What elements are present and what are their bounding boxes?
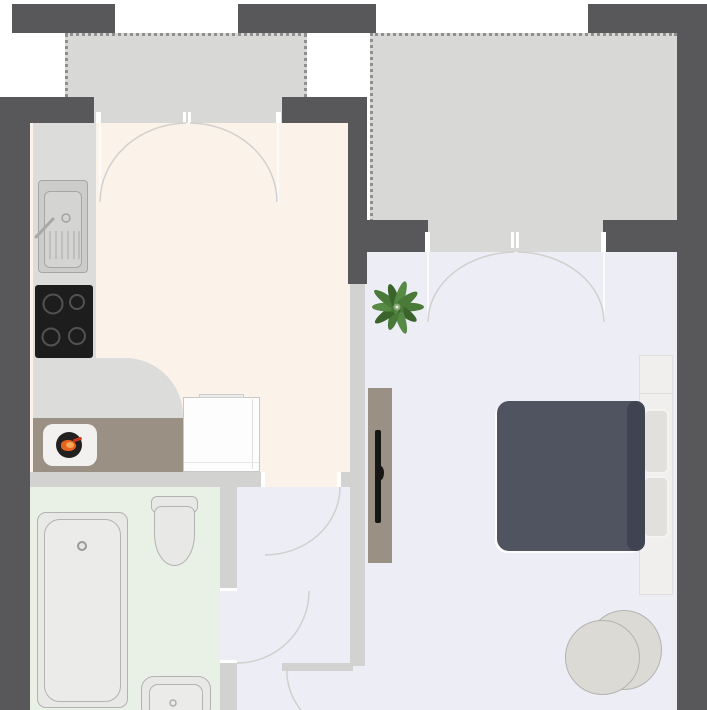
- jamb-balcony-left-door-b: [276, 112, 281, 123]
- jamb-balcony-left-door-mid1: [183, 112, 186, 123]
- armchair-seat: [565, 620, 640, 695]
- bathroom-door-threshold: [220, 591, 237, 663]
- jamb-balcony-right-door-b: [601, 232, 606, 252]
- wall-bathroom-east-upper: [220, 487, 237, 591]
- jamb-bathroom-door-a: [220, 588, 237, 591]
- kitchen-sink-basin: [44, 191, 82, 268]
- fridge-handle: [199, 394, 244, 398]
- cooktop: [35, 285, 93, 358]
- wall-hall-south: [282, 663, 353, 671]
- wall-top-middle: [238, 4, 376, 33]
- wall-kitchen-living-divider: [348, 97, 367, 284]
- door-leaf-balcony-right-a: [427, 252, 429, 322]
- wall-east: [677, 32, 707, 710]
- room-balcony-left: [65, 33, 307, 123]
- washing-machine-laundry-highlight: [66, 442, 74, 448]
- bed-duvet: [497, 401, 645, 551]
- jamb-kitchen-hall-door-a: [261, 472, 265, 487]
- bathroom-sink-basin: [149, 684, 203, 710]
- jamb-bathroom-door-b: [220, 660, 237, 663]
- wall-west: [0, 97, 30, 710]
- door-leaf-balcony-left-a: [99, 123, 101, 203]
- jamb-balcony-right-door-mid2: [516, 232, 519, 248]
- fridge-bottom-line: [184, 462, 259, 463]
- floor-plan: [0, 0, 707, 710]
- tv-mount: [377, 466, 384, 480]
- wall-kitchen-bath-divider: [30, 472, 265, 487]
- jamb-balcony-right-door-a: [425, 232, 430, 252]
- wall-top-left: [12, 4, 115, 33]
- bathtub-drain: [77, 541, 87, 551]
- bed-pillow-1: [643, 409, 669, 474]
- bed-frame-divider: [640, 393, 672, 394]
- bed-duvet-folded-edge: [627, 401, 645, 551]
- jamb-balcony-left-door-a: [96, 112, 101, 123]
- door-leaf-balcony-left-b: [277, 123, 279, 203]
- kitchen-door-threshold: [265, 472, 340, 487]
- jamb-balcony-right-door-mid1: [511, 232, 514, 248]
- wall-top-right: [588, 4, 707, 33]
- door-leaf-balcony-right-b: [603, 252, 605, 322]
- wall-living-north-left: [367, 220, 428, 252]
- fridge: [183, 397, 260, 472]
- wall-living-north-right: [603, 220, 677, 252]
- wall-bathroom-east-lower: [220, 663, 237, 710]
- bed-pillow-2: [643, 476, 669, 538]
- fridge-door-line: [252, 399, 253, 469]
- wall-kitchen-north-left: [0, 97, 94, 123]
- wall-hall-living-partition: [350, 284, 365, 666]
- jamb-balcony-left-door-mid2: [188, 112, 191, 123]
- jamb-kitchen-hall-door-b: [337, 472, 341, 487]
